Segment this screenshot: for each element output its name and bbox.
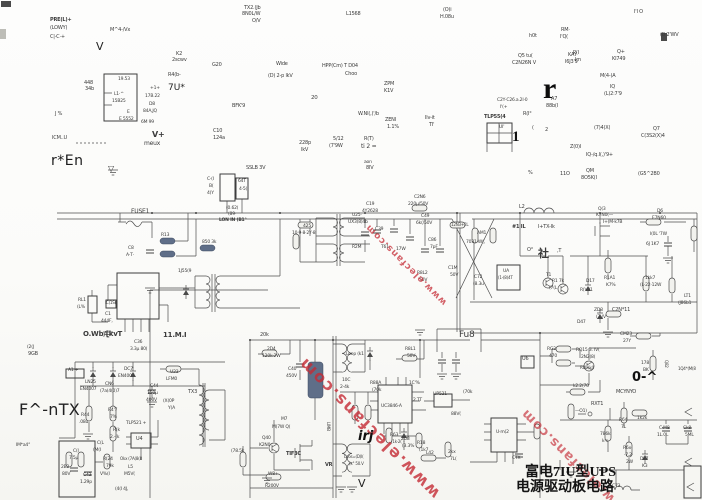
schematic-label: D17	[586, 279, 595, 284]
schematic-label: IQ-/q.I(,)'9+	[586, 153, 613, 159]
schematic-label: ICM..U	[52, 136, 67, 142]
schematic-label: Choo	[345, 72, 357, 78]
schematic-label: U6	[522, 357, 528, 363]
schematic-label: 228p	[299, 141, 311, 147]
schematic-label: R2M	[352, 245, 361, 250]
schematic-label: 850 3k	[202, 240, 216, 245]
schematic-label: (70k	[463, 390, 472, 395]
schematic-label: (8.3u	[473, 282, 484, 287]
schematic-label: B(	[209, 184, 213, 189]
mark-7u: 7U*	[168, 83, 185, 93]
schematic-label: (2(J	[27, 345, 34, 350]
schematic-label: R8L·(k(I	[580, 366, 594, 371]
schematic-label: R(k	[113, 428, 120, 433]
schematic-label: TLP521 +	[126, 421, 146, 426]
schematic-label: Q82	[663, 360, 668, 368]
schematic-label: T1	[546, 273, 551, 278]
schematic-label: 5/12	[333, 137, 343, 143]
schematic-label: Ck8	[683, 426, 691, 431]
schematic-label: 4(Y	[207, 191, 214, 196]
schematic-label: #1 IL	[512, 225, 525, 231]
schematic-label: 88V(	[451, 412, 461, 417]
schematic-label: E 5552	[119, 117, 134, 122]
schematic-label: J %	[55, 112, 62, 118]
schematic-label: k2.2(70	[573, 384, 589, 389]
schematic-label: 220μ/50V	[408, 202, 428, 207]
schematic-label: C2N*11	[612, 308, 630, 314]
schematic-label: L42	[426, 451, 434, 456]
schematic-label: KAY	[568, 53, 577, 59]
schematic-label: R(V31	[580, 288, 593, 293]
schematic-label: Z(0)I	[570, 145, 581, 151]
schematic-label: LIP521	[433, 392, 447, 397]
schematic-label: (LOWY)	[50, 26, 67, 32]
schematic-label: G20	[212, 63, 222, 69]
schematic-label: meux	[144, 141, 160, 148]
schematic-label: 6J 1K7	[646, 242, 659, 247]
schematic-label: 124a	[213, 136, 225, 142]
schematic-label: R1A1	[604, 276, 615, 281]
schematic-label: D47	[577, 320, 586, 325]
schematic-label: (70k	[372, 388, 381, 393]
schematic-label: UC3846·A	[381, 404, 402, 409]
schematic-label: 7%	[110, 415, 117, 420]
schematic-label: W8+	[268, 472, 278, 477]
schematic-label: 5ML	[685, 433, 694, 438]
schematic-label: LN25	[85, 380, 96, 385]
schematic-label: E	[127, 110, 130, 115]
schematic-label: M7	[281, 417, 287, 422]
schematic-label: ▽	[108, 164, 114, 173]
schematic-label: 400V	[146, 398, 157, 403]
schematic-label: 2scwv	[172, 58, 187, 64]
schematic-label: TLP55(4	[484, 115, 506, 121]
schematic-label: 2B2	[61, 465, 69, 470]
schematic-label: L5	[128, 465, 133, 470]
schematic-label: 1kk7	[645, 276, 655, 281]
schematic-label: 79k	[106, 464, 114, 469]
schematic-label: lkV	[301, 148, 308, 154]
schematic-label: W.NI(,)'/b	[358, 112, 379, 118]
schematic-label: C·M8	[659, 426, 670, 431]
schematic-label: 6k(/50V	[416, 221, 432, 226]
schematic-label: (7)4(X(	[594, 126, 610, 132]
schematic-label: R8L1	[405, 347, 416, 352]
schematic-label: 4·5(	[239, 187, 247, 192]
schematic-label: 1J55(9	[178, 269, 191, 274]
schematic-label: VR	[325, 463, 332, 469]
schematic-label: SSLB 3V	[246, 166, 265, 172]
schematic-label: Dk7	[640, 457, 648, 462]
schematic-label: Q+	[617, 50, 625, 56]
schematic-label: 20	[311, 95, 318, 101]
schematic-label: (7(L	[549, 286, 557, 291]
schematic-label: C·(I	[207, 177, 214, 182]
schematic-label: IQ	[610, 85, 615, 91]
schematic-label: UX3(8)4b	[348, 220, 368, 225]
schematic-label: E7N60	[652, 216, 666, 221]
schematic-label: C86	[428, 238, 436, 243]
schematic-label: UI'	[499, 125, 504, 130]
schematic-label: 2D4	[267, 347, 276, 352]
schematic-label: (J86b1	[678, 301, 691, 306]
schematic-label: Y(A	[168, 406, 175, 411]
schematic-label: R(T)	[364, 137, 374, 143]
schematic-label: M5V(	[124, 472, 135, 477]
schematic-label: R4(b-	[168, 73, 181, 79]
schematic-label: RG2	[547, 347, 556, 352]
schematic-label: (89·	[228, 212, 236, 217]
schematic-label: HPP(Cm) T D04	[322, 64, 358, 70]
schematic-label: C10	[213, 129, 222, 135]
schematic-label: 12N3+2L	[451, 223, 468, 228]
schematic-label: 786k	[600, 432, 610, 437]
schematic-label: CM23	[620, 332, 632, 337]
schematic-label: K7%	[606, 283, 616, 288]
schematic-label: ZENI	[385, 118, 396, 124]
schematic-label: C36	[134, 340, 142, 345]
schematic-label: 2W	[626, 460, 633, 465]
schematic-label: 1k2k	[637, 416, 647, 421]
schematic-label: I'(+	[500, 105, 507, 110]
schematic-label: (M(I	[93, 448, 101, 453]
schematic-label: (78.5k	[231, 449, 244, 454]
schematic-label: BFK'9	[232, 104, 245, 110]
schematic-label: IM*a4°	[16, 443, 30, 448]
schematic-label: R1 7k	[552, 279, 564, 284]
schematic-label: K1V	[384, 89, 393, 95]
schematic-label: C19	[366, 202, 374, 207]
schematic-label: R88A	[370, 381, 381, 386]
schematic-label: 10C	[342, 378, 350, 383]
schematic-label: (L·22·12W	[640, 283, 661, 288]
schematic-label: .08u	[79, 420, 88, 425]
schematic-label: Q(3	[598, 207, 606, 212]
schematic-label: L2	[519, 205, 525, 211]
schematic-label: K3	[642, 464, 647, 469]
schematic-label: Wide	[276, 62, 288, 68]
schematic-label: C44	[150, 384, 158, 389]
schematic-label: IC(1S(	[105, 301, 116, 306]
schematic-label: 1Q4*(M(8	[678, 367, 696, 372]
schematic-label: h0t	[529, 34, 537, 40]
schematic-label: TX3	[188, 390, 197, 396]
schematic-label: 84A,JQ	[143, 109, 157, 114]
schematic-label: 15B25	[112, 99, 126, 104]
schematic-label: C2N26N V	[512, 61, 536, 67]
schematic-label: RL1	[78, 298, 86, 303]
schematic-label: 64T	[238, 179, 246, 184]
schematic-label: 50V	[407, 354, 415, 359]
schematic-label: (G5^2B0	[638, 172, 660, 178]
schematic-label: C1	[105, 312, 111, 317]
schematic-label: L1·^	[114, 92, 124, 97]
schematic-label: 11.M.I	[163, 331, 186, 339]
schematic-label: RM·	[561, 28, 570, 34]
schematic-label: 7L	[621, 425, 626, 430]
schematic-label: 8IV	[366, 166, 373, 172]
schematic-label: I(0L '7W	[650, 232, 667, 237]
mark-r-en: r*En	[51, 153, 83, 169]
diagram-title-line2: 电源驱动板电路	[516, 476, 614, 496]
schematic-label: (x° 50.V	[349, 462, 364, 467]
schematic-label: 4Y2628	[362, 209, 378, 214]
schematic-label: 11O	[560, 172, 570, 178]
schematic-label: DC7	[124, 367, 133, 372]
schematic-label: D6	[657, 209, 663, 214]
schematic-label: k·s	[602, 439, 608, 444]
schematic-label: CN6	[105, 382, 114, 387]
schematic-label: D8	[149, 102, 155, 107]
schematic-label: (L)2:7'9	[604, 92, 622, 98]
schematic-label: +1+	[150, 86, 160, 91]
schematic-label: 1.1%	[387, 125, 399, 131]
mark-v-bottom: V	[358, 477, 366, 490]
schematic-label: EN4007	[80, 387, 96, 392]
schematic-label: 425	[303, 224, 311, 229]
schematic-label: 20k	[260, 333, 269, 339]
schematic-label: 178	[641, 361, 649, 366]
schematic-label: M(7W Q(	[272, 425, 290, 430]
mark-zero-caret: 0-^	[632, 370, 657, 385]
mark-f-ntx: F^-nTX	[19, 400, 80, 419]
schematic-label: ti 2 =	[361, 144, 376, 151]
schematic-label: ·7.2·	[624, 453, 633, 458]
mark-v-top: V	[96, 40, 104, 53]
schematic-label: (3.(V	[596, 315, 606, 320]
schematic-label: RXT1	[591, 402, 603, 408]
schematic-label: (O)i	[443, 8, 451, 14]
schematic-label: Okx (7A(8(8	[120, 457, 142, 462]
schematic-label: UA	[503, 269, 509, 274]
schematic-label: Q5 tu(	[518, 54, 533, 60]
schematic-label: K2N0	[259, 443, 270, 448]
schematic-label: 444F,	[101, 319, 113, 324]
schematic-label: 450V	[286, 374, 297, 379]
schematic-label: (D) 2-p lkV	[268, 74, 293, 80]
schematic-label: 2N2(8(	[581, 355, 595, 360]
schematic-label: C(L	[97, 441, 104, 446]
schematic-label: V+	[152, 130, 165, 139]
schematic-label: ,T	[557, 249, 561, 255]
schematic-label: AM1	[477, 231, 486, 236]
schematic-label: QM	[586, 169, 594, 175]
schematic-label: —O1)	[575, 409, 587, 414]
schematic-label: LT1	[684, 294, 691, 299]
schematic-label: 7.5μ	[69, 456, 78, 461]
schematic-label: CTX	[512, 456, 520, 461]
schematic-label: EN4007	[118, 374, 134, 379]
schematic-label: O°	[527, 248, 533, 254]
schematic-label: 7pF	[430, 245, 438, 250]
schematic-label: Q40	[262, 436, 271, 441]
schematic-label: 50V	[450, 273, 458, 278]
schematic-label: Ilv-it	[425, 116, 435, 122]
schematic-label: 80V	[62, 472, 70, 477]
schematic-label: 27Y	[623, 339, 631, 344]
schematic-label: (	[532, 126, 534, 132]
schematic-canvas: PRE(L)+(LOWY)C|·C·+M^4-/VxK22scwvG20R4(b…	[0, 0, 702, 500]
schematic-label: O/V	[252, 19, 260, 25]
schematic-label: 10·9·8·2Y·8	[292, 231, 315, 236]
schematic-label: 470	[549, 354, 557, 359]
schematic-label: 120k·2W	[262, 354, 281, 359]
schematic-label: 150μ	[147, 391, 158, 396]
schematic-label: TIF3C	[286, 452, 301, 458]
mark-handwritten-1: 1	[512, 129, 520, 146]
schematic-label: C2Y·C26.a.2I·0	[497, 98, 527, 103]
schematic-label: (7'9W	[329, 144, 343, 150]
schematic-label: R44	[81, 413, 89, 418]
schematic-label: R200V	[265, 484, 279, 489]
schematic-label: A1·+	[68, 368, 78, 373]
schematic-label: 19.53	[118, 77, 130, 82]
schematic-label: (0.62(	[226, 206, 238, 211]
schematic-label: 2.TT	[413, 398, 422, 403]
schematic-label: C2N6	[414, 195, 425, 200]
schematic-label: U4	[136, 437, 142, 443]
schematic-label: O.Wb/[kvT	[83, 330, 122, 338]
schematic-label: R(24	[103, 457, 113, 462]
schematic-label: (L%	[77, 305, 85, 310]
schematic-label: L1568	[346, 12, 361, 18]
schematic-label: Q7	[653, 127, 660, 133]
schematic-label: 2	[545, 128, 548, 134]
schematic-label: MCYNYO	[616, 390, 636, 396]
schematic-label: Fu8	[459, 330, 475, 340]
schematic-label: %	[528, 171, 533, 177]
schematic-label: I'I O	[634, 10, 643, 16]
schematic-label: C8	[128, 246, 134, 251]
schematic-label: V%(I	[100, 472, 110, 477]
schematic-label: I6J3'9	[565, 60, 578, 66]
schematic-label: 3.3μ 80(	[130, 347, 147, 352]
schematic-label: LIMB	[325, 422, 330, 431]
schematic-label: U·m(2	[496, 430, 509, 435]
schematic-label: 2D8	[401, 437, 410, 442]
schematic-label: 1.29p	[80, 480, 92, 485]
mark-big-r: r	[543, 72, 556, 106]
schematic-label: (B 2'WV	[660, 33, 679, 39]
schematic-label: 2.-(k	[110, 435, 119, 440]
schematic-label: 9GB	[28, 352, 38, 358]
schematic-label: ZPM	[384, 82, 394, 88]
schematic-label: H.08u	[440, 15, 454, 21]
schematic-label: R(I°	[523, 112, 532, 118]
schematic-label: (4(I 4J,	[115, 487, 128, 492]
schematic-label: C(I	[73, 449, 79, 454]
schematic-label: FUSE1	[131, 209, 149, 216]
schematic-label: Loos=(D(I(	[344, 455, 363, 460]
schematic-label: 社	[538, 248, 549, 261]
schematic-label: 6M 99	[141, 120, 154, 125]
schematic-label: I'Q(	[560, 35, 568, 41]
schematic-label: I+(M-k7B	[603, 220, 622, 225]
schematic-label: U25·	[352, 213, 362, 218]
schematic-label: 2kx	[448, 450, 456, 455]
schematic-label: M(4-)A	[600, 74, 615, 80]
schematic-label: R6x·	[623, 446, 632, 451]
schematic-label: 1C'%	[409, 381, 420, 386]
schematic-label: LON IN (B1°	[219, 218, 247, 223]
schematic-label: TI'	[429, 123, 434, 129]
schematic-label: 34b	[85, 87, 94, 93]
schematic-label: M^4-/Vx	[110, 28, 130, 34]
schematic-label: LFM0	[166, 377, 177, 382]
schematic-label: (7a(4(0)7	[100, 389, 119, 394]
schematic-label: C1M	[448, 266, 457, 271]
schematic-label: C43	[83, 473, 91, 478]
schematic-label: 8O5K(I	[581, 176, 597, 182]
schematic-label: K7N0(—	[596, 213, 613, 218]
schematic-label: 7031 W(,	[466, 240, 485, 245]
schematic-label: PRE(L)+	[50, 18, 71, 24]
schematic-label: 17B.22	[145, 94, 160, 99]
schematic-label: Loop (k1	[346, 352, 364, 357]
schematic-label: R4'7	[108, 408, 117, 413]
schematic-label: U23	[170, 370, 178, 375]
schematic-label: R13	[161, 233, 169, 238]
schematic-label: C|·C·+	[50, 35, 65, 41]
schematic-label: (X(0P	[163, 399, 174, 404]
schematic-label: 1L.0L	[657, 433, 668, 438]
schematic-label: C49	[421, 214, 429, 219]
schematic-label: (3.3%	[402, 444, 414, 449]
schematic-label: 7L(	[450, 457, 457, 462]
schematic-label: R18	[417, 441, 425, 446]
mark-irj: irj	[358, 429, 373, 444]
schematic-label: ZD8	[594, 308, 603, 313]
schematic-label: A·T·	[126, 253, 134, 258]
schematic-label: 8N0L/W	[242, 12, 260, 18]
schematic-label: C72	[474, 275, 482, 280]
schematic-label: RQ15 3. IV(	[576, 348, 600, 353]
schematic-label: R64	[619, 418, 627, 423]
schematic-label: (1-(8(4T	[498, 276, 513, 281]
schematic-label: KI749	[612, 57, 625, 63]
schematic-label: C(3S2(X)4	[641, 134, 665, 140]
schematic-label: I+TX-Ik	[538, 225, 555, 231]
